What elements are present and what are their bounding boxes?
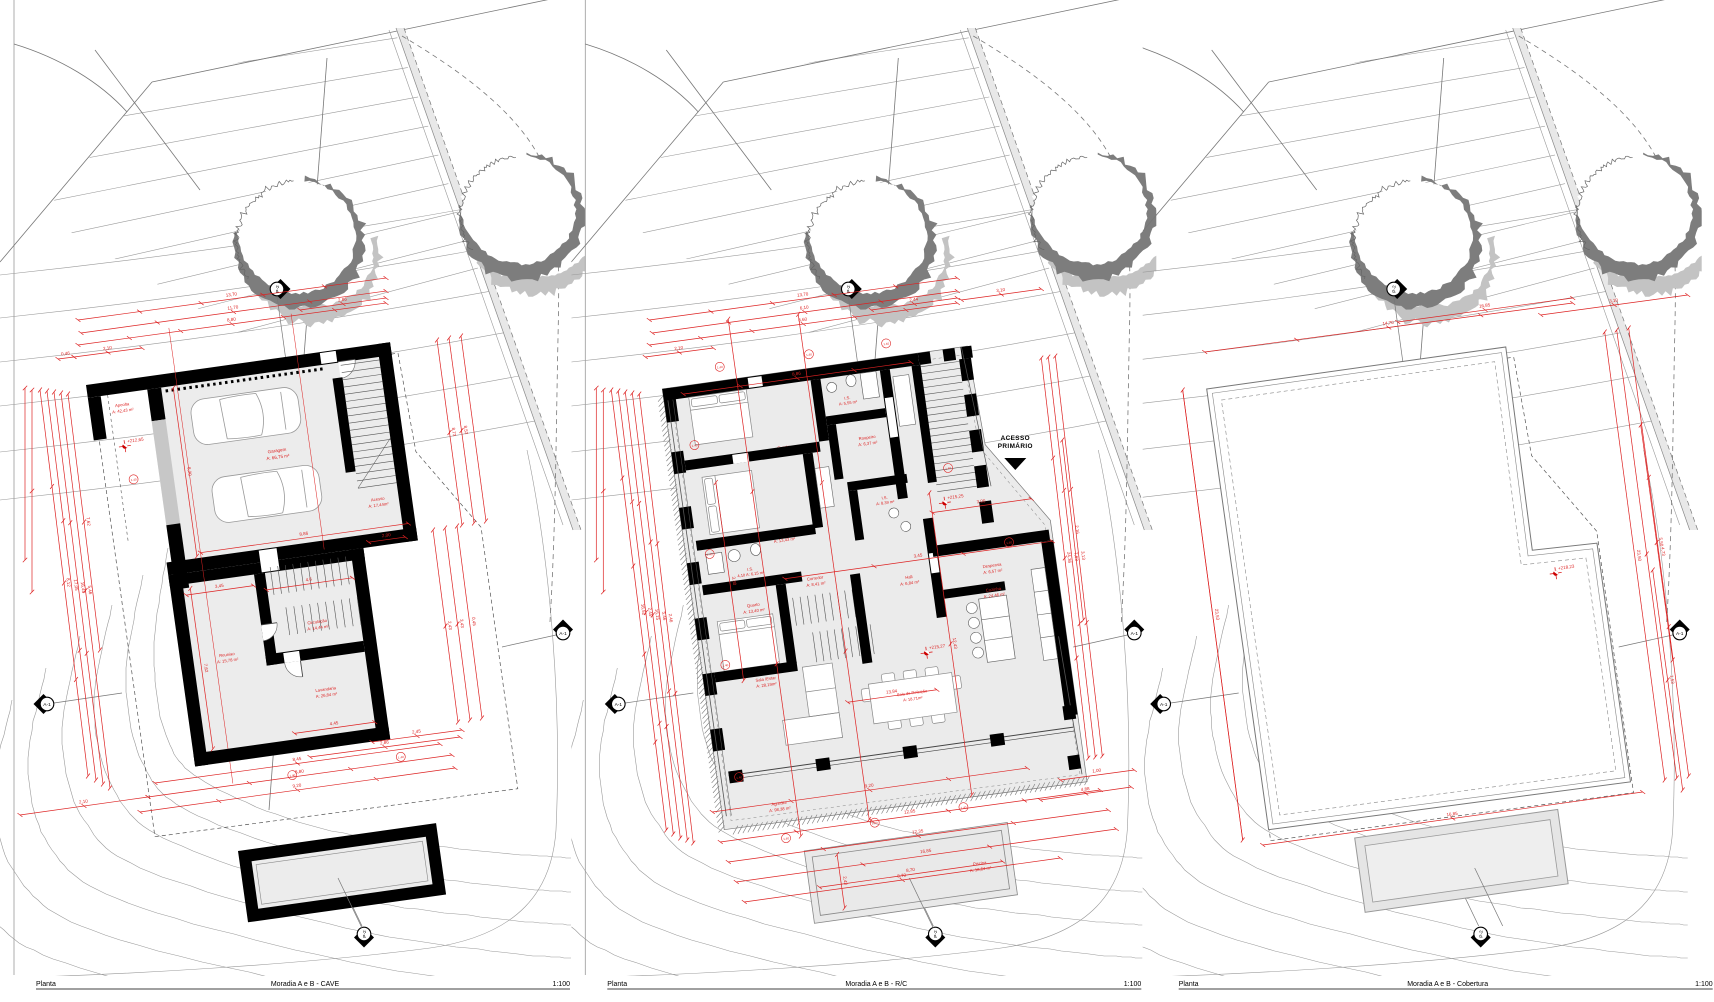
svg-text:Moradia A e B - Cobertura: Moradia A e B - Cobertura	[1407, 981, 1488, 988]
svg-text:A-1: A-1	[43, 702, 51, 708]
svg-text:1.40: 1.40	[130, 477, 137, 482]
svg-text:P-2: P-2	[275, 285, 281, 293]
svg-text:1.40: 1.40	[707, 552, 714, 557]
svg-text:Moradia A e B - R/C: Moradia A e B - R/C	[845, 981, 907, 988]
svg-text:1.40: 1.40	[722, 663, 729, 668]
svg-text:1.40: 1.40	[736, 775, 743, 780]
svg-text:Planta: Planta	[607, 981, 627, 988]
svg-text:P-2: P-2	[1479, 930, 1485, 938]
svg-text:P-2: P-2	[362, 930, 368, 938]
svg-text:4,6: 4,6	[305, 576, 312, 582]
svg-text:1.40: 1.40	[717, 365, 724, 370]
svg-text:Moradia A e B - CAVE: Moradia A e B - CAVE	[271, 981, 340, 988]
svg-text:1.40: 1.40	[691, 443, 698, 448]
svg-text:A-1: A-1	[1160, 702, 1168, 708]
svg-text:A-1: A-1	[559, 631, 567, 637]
svg-text:1.40: 1.40	[783, 836, 790, 841]
svg-text:A-1: A-1	[1676, 631, 1684, 637]
svg-text:2,16: 2,16	[1074, 525, 1080, 535]
svg-text:P-2: P-2	[846, 285, 852, 293]
svg-text:1.40: 1.40	[1006, 540, 1013, 545]
svg-text:P-2: P-2	[933, 930, 939, 938]
svg-text:1.40: 1.40	[883, 341, 890, 346]
svg-text:1:100: 1:100	[552, 981, 570, 988]
svg-text:A-1: A-1	[615, 702, 623, 708]
svg-text:1.40: 1.40	[398, 755, 405, 760]
svg-text:1:100: 1:100	[1695, 981, 1713, 988]
svg-text:A-1: A-1	[1131, 631, 1139, 637]
svg-text:3,13: 3,13	[1080, 551, 1086, 561]
svg-text:Planta: Planta	[36, 981, 56, 988]
svg-text:ACESSO: ACESSO	[1001, 435, 1030, 442]
svg-text:Planta: Planta	[1179, 981, 1199, 988]
svg-text:1.40: 1.40	[806, 352, 813, 357]
svg-text:Hall: Hall	[905, 574, 913, 580]
svg-text:1:100: 1:100	[1124, 981, 1142, 988]
svg-text:1.40: 1.40	[945, 466, 952, 471]
svg-text:PRIMÁRIO: PRIMÁRIO	[998, 441, 1033, 450]
svg-text:P-2: P-2	[1392, 285, 1398, 293]
